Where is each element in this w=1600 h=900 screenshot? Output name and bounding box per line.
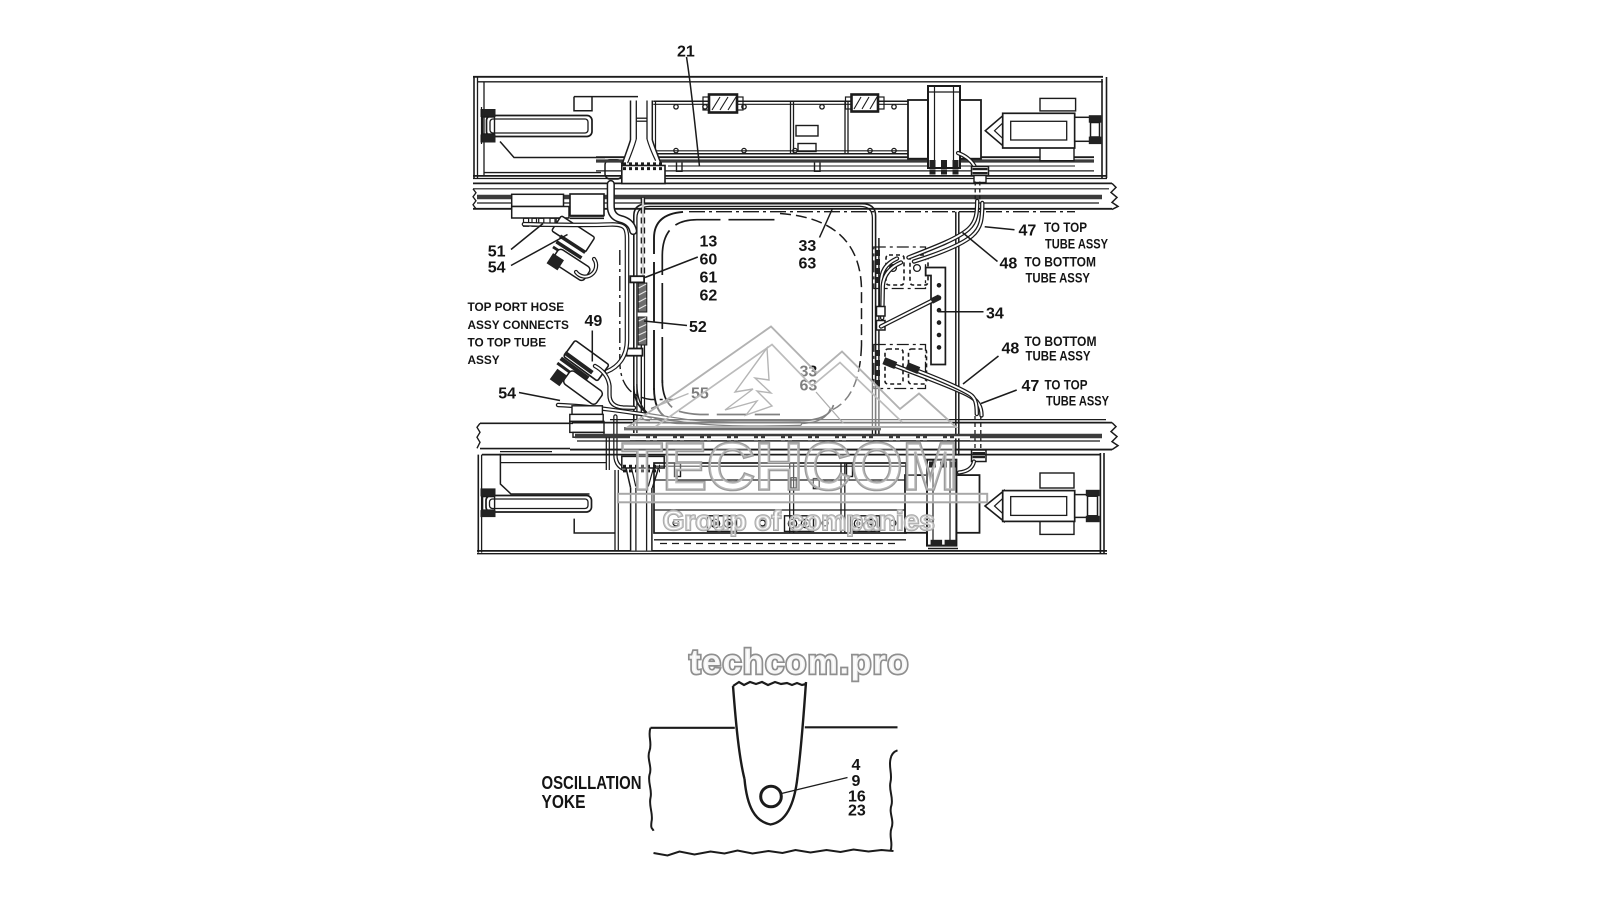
svg-text:TO TOP: TO TOP bbox=[1045, 377, 1088, 393]
svg-text:62: 62 bbox=[700, 288, 718, 305]
svg-text:ASSY: ASSY bbox=[468, 353, 500, 367]
svg-text:47: 47 bbox=[1019, 223, 1037, 240]
svg-text:TUBE ASSY: TUBE ASSY bbox=[1026, 270, 1091, 286]
svg-text:51: 51 bbox=[488, 244, 506, 261]
svg-text:60: 60 bbox=[700, 252, 718, 269]
svg-text:ASSY CONNECTS: ASSY CONNECTS bbox=[468, 318, 570, 332]
svg-text:63: 63 bbox=[799, 256, 817, 273]
svg-text:TUBE ASSY: TUBE ASSY bbox=[1045, 236, 1109, 252]
svg-text:Group of companies: Group of companies bbox=[663, 505, 935, 536]
svg-text:48: 48 bbox=[1002, 341, 1020, 358]
svg-text:YOKE: YOKE bbox=[542, 791, 586, 812]
svg-text:52: 52 bbox=[689, 319, 707, 336]
svg-text:4: 4 bbox=[852, 757, 861, 774]
svg-text:13: 13 bbox=[700, 234, 718, 251]
svg-text:TO BOTTOM: TO BOTTOM bbox=[1025, 254, 1097, 270]
svg-text:techcom.pro: techcom.pro bbox=[689, 644, 910, 682]
svg-text:TUBE ASSY: TUBE ASSY bbox=[1046, 393, 1110, 409]
svg-text:OSCILLATION: OSCILLATION bbox=[542, 772, 642, 793]
svg-text:34: 34 bbox=[986, 306, 1004, 323]
svg-text:54: 54 bbox=[498, 386, 516, 403]
svg-text:TO TOP: TO TOP bbox=[1044, 219, 1087, 235]
svg-text:TUBE ASSY: TUBE ASSY bbox=[1026, 348, 1092, 364]
svg-text:23: 23 bbox=[848, 803, 866, 820]
svg-text:61: 61 bbox=[700, 270, 718, 287]
svg-text:TO TOP TUBE: TO TOP TUBE bbox=[468, 336, 547, 350]
svg-text:9: 9 bbox=[852, 773, 861, 790]
svg-text:54: 54 bbox=[488, 260, 506, 277]
svg-text:TOP PORT HOSE: TOP PORT HOSE bbox=[468, 300, 565, 314]
svg-text:33: 33 bbox=[799, 238, 817, 255]
svg-text:49: 49 bbox=[585, 313, 603, 330]
svg-text:48: 48 bbox=[1000, 256, 1018, 273]
svg-text:47: 47 bbox=[1022, 378, 1040, 395]
